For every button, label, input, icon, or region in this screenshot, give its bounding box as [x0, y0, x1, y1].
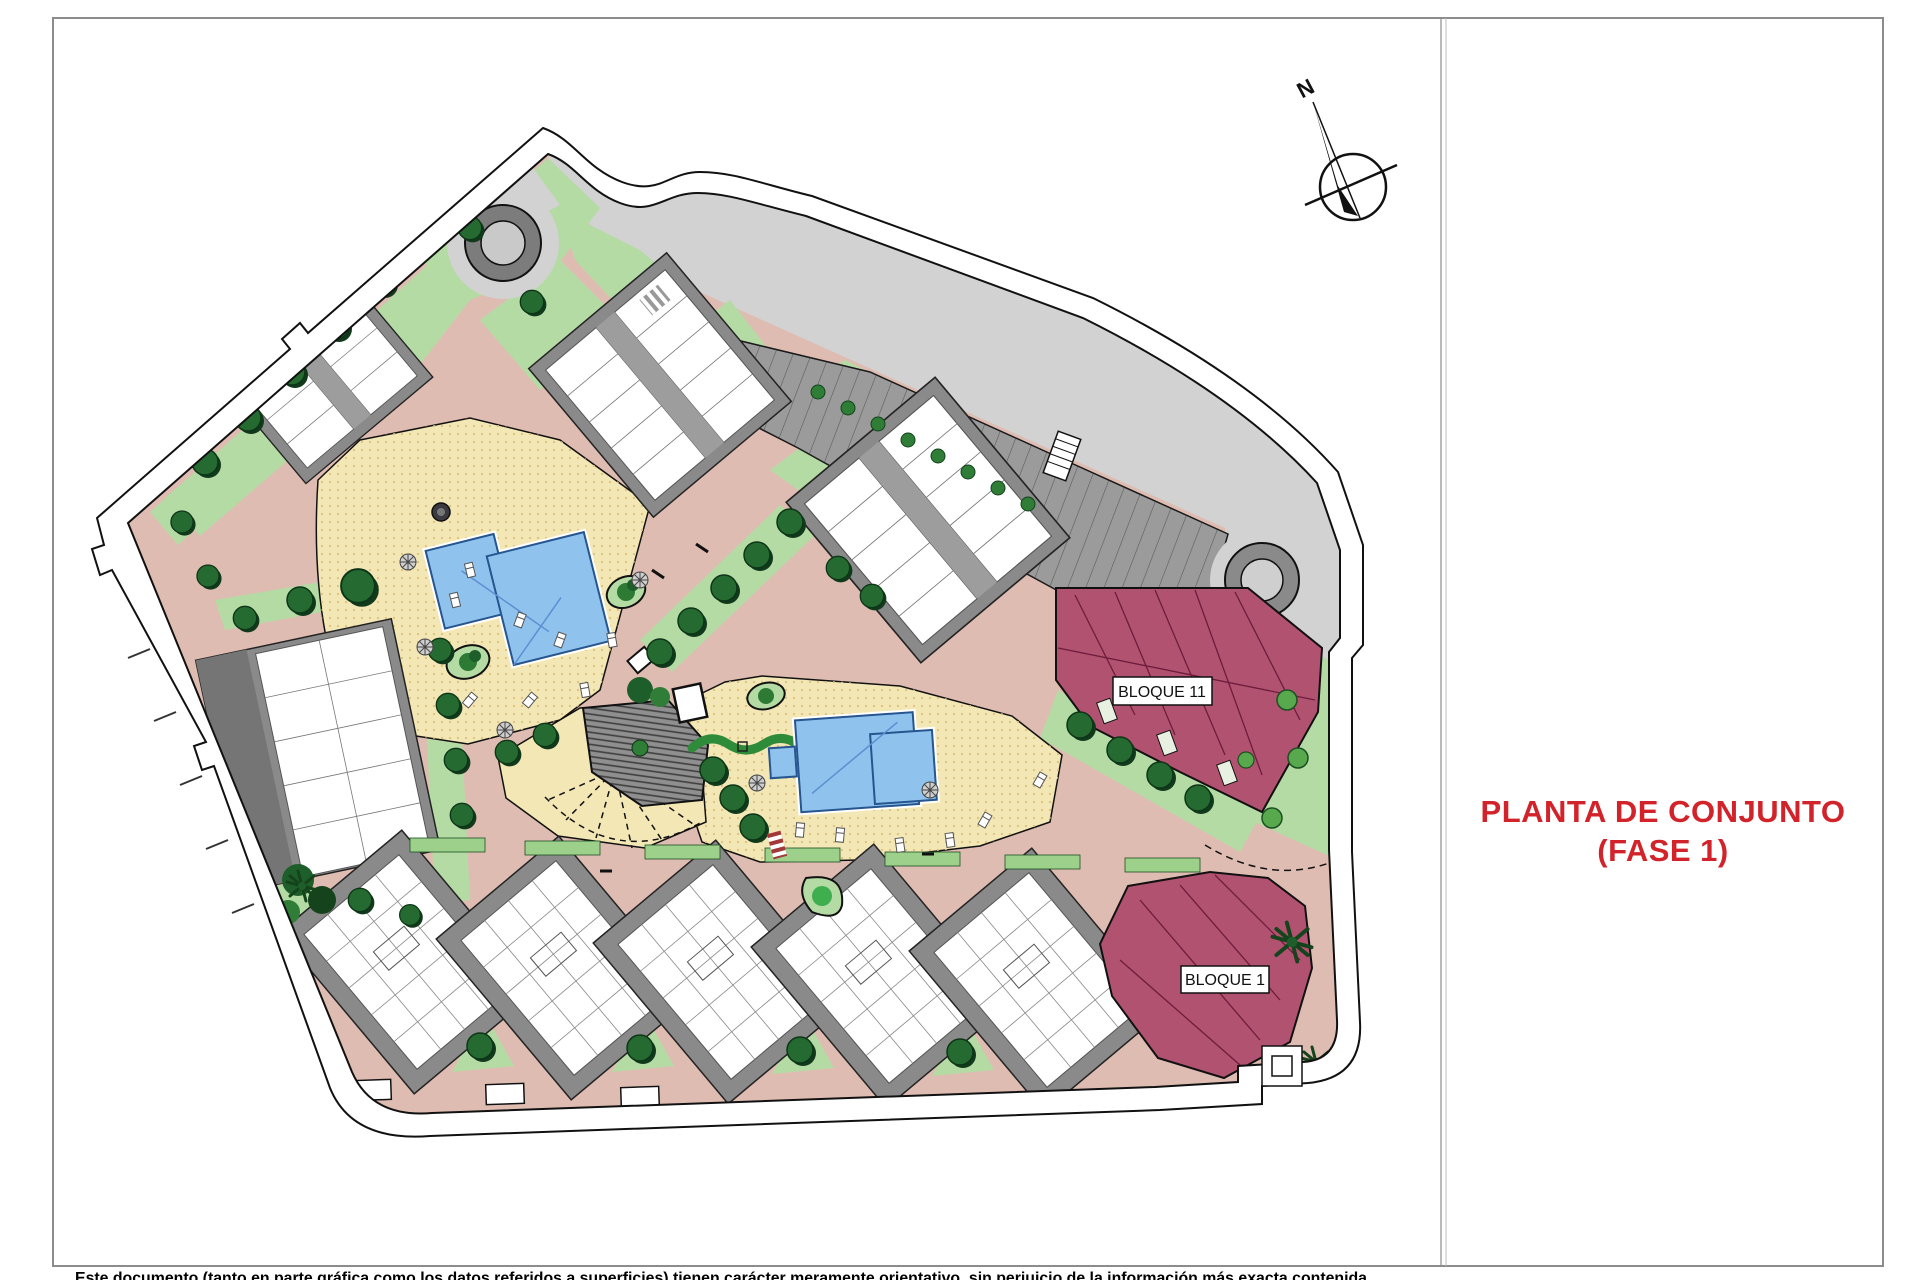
- disclaimer-text: Este documento (tanto en parte gráfica c…: [75, 1270, 1367, 1280]
- drawing-title-line2: (FASE 1): [1597, 833, 1728, 868]
- site-plan-sheet: N BLOQUE 11 BLOQUE 1 PLANTA DE CONJUNTO …: [0, 0, 1920, 1280]
- bloque-11-label: BLOQUE 11: [1113, 677, 1212, 705]
- bloque-1-label: BLOQUE 1: [1181, 966, 1269, 993]
- bloque-11-label-text: BLOQUE 11: [1118, 684, 1206, 701]
- bloque-1-label-text: BLOQUE 1: [1185, 972, 1265, 989]
- drawing-title-line1: PLANTA DE CONJUNTO: [1481, 794, 1846, 829]
- utility-box: [1262, 1046, 1302, 1086]
